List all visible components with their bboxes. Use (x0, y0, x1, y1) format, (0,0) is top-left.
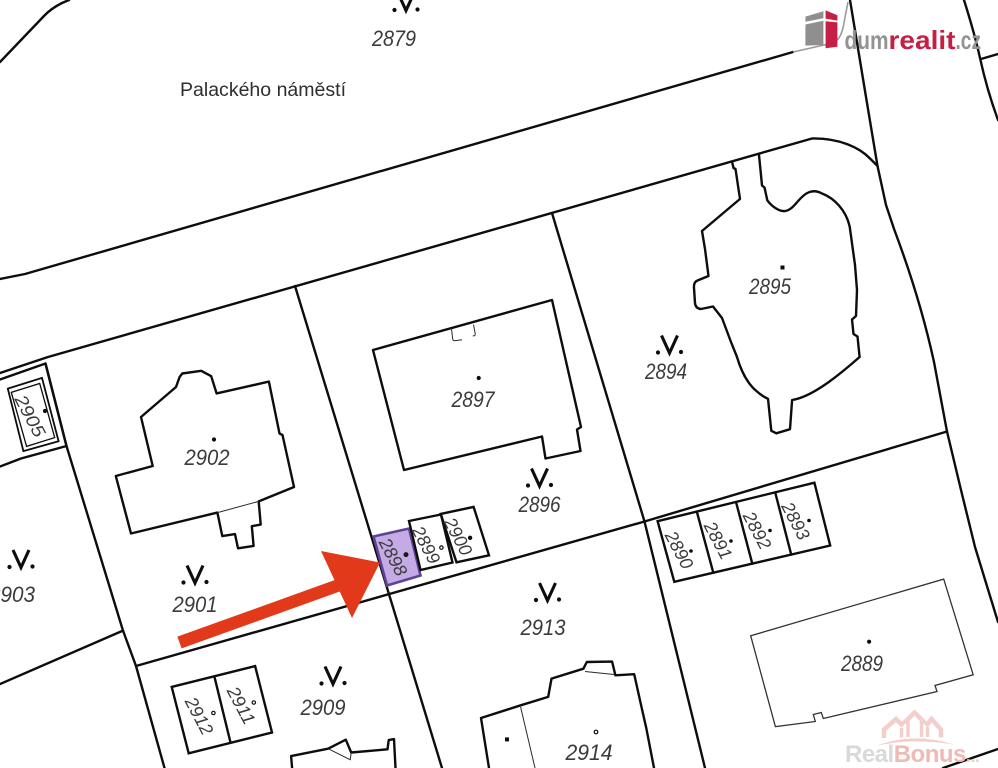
svg-text:2894: 2894 (644, 359, 687, 384)
svg-text:.cz: .cz (956, 25, 982, 55)
svg-text:dum: dum (845, 25, 889, 55)
svg-text:2889: 2889 (840, 651, 883, 676)
svg-text:2901: 2901 (172, 592, 218, 617)
svg-text:2896: 2896 (518, 492, 561, 517)
svg-text:RealBonus...: RealBonus... (845, 741, 979, 768)
svg-text:Palackého náměstí: Palackého náměstí (180, 79, 347, 101)
svg-text:2909: 2909 (300, 695, 346, 720)
svg-text:2913: 2913 (520, 615, 566, 640)
svg-text:2879: 2879 (371, 26, 416, 51)
svg-text:2897: 2897 (451, 387, 496, 412)
svg-text:2902: 2902 (184, 445, 230, 470)
svg-text:2914: 2914 (565, 740, 613, 765)
svg-text:2895: 2895 (748, 274, 791, 299)
svg-text:realit: realit (889, 25, 956, 55)
svg-text:2903: 2903 (0, 582, 35, 607)
